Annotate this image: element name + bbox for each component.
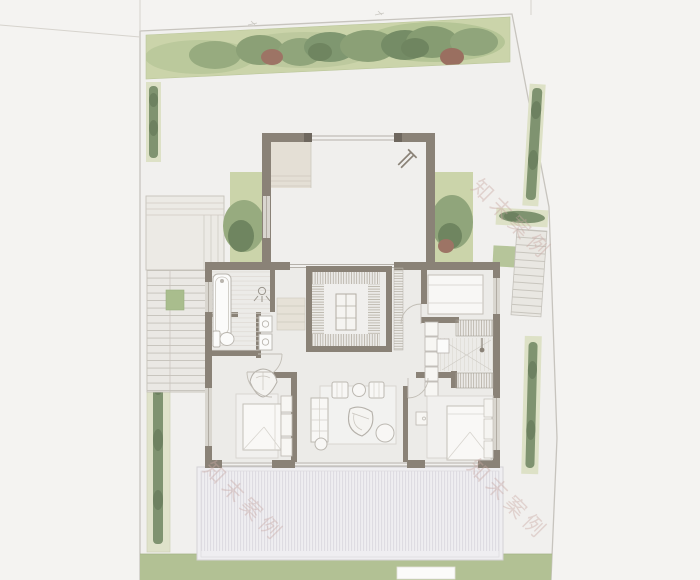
stair-flight-lower xyxy=(456,373,493,388)
hedge-left-top xyxy=(146,82,161,162)
tree-dark xyxy=(308,43,332,61)
red-tree xyxy=(261,49,283,65)
bedroom-right-wall-west xyxy=(403,386,408,462)
building xyxy=(205,133,500,468)
wall-cap xyxy=(304,133,312,142)
atrium-deck-band xyxy=(312,284,324,334)
courtyard-steps xyxy=(271,142,311,188)
courtyard-wall-right xyxy=(426,133,435,266)
shelf-column xyxy=(484,399,493,458)
bath-wall-east-upper xyxy=(270,268,275,312)
red-tree xyxy=(440,48,464,66)
floor-plan-canvas: 知末案例 知末案例 知末案例 xyxy=(0,0,700,580)
wall-cap xyxy=(394,133,402,142)
red-tree xyxy=(438,239,454,253)
stair-flight-upper xyxy=(456,320,493,336)
ottoman xyxy=(376,424,394,442)
armchair xyxy=(369,382,384,398)
bed xyxy=(428,275,483,314)
hall-wall xyxy=(421,270,427,304)
atrium-wall-top xyxy=(306,266,392,272)
house-wall-top-right xyxy=(425,262,500,270)
inner-atrium xyxy=(312,272,380,346)
atrium-wall-left xyxy=(306,266,312,352)
wc-basin xyxy=(437,339,449,353)
grate-strip xyxy=(394,268,403,350)
courtyard-garden-right xyxy=(431,172,473,264)
hedge-texture xyxy=(149,120,158,136)
garden-terrace xyxy=(146,196,224,270)
stool xyxy=(315,438,327,450)
hedge-texture xyxy=(153,490,163,510)
hall-steps xyxy=(277,298,305,330)
sofa xyxy=(311,398,328,442)
bedside-units xyxy=(281,396,292,456)
floor-plan-drawing: 知末案例 知末案例 知末案例 xyxy=(0,0,700,580)
green-landing xyxy=(166,290,184,310)
bedside-table xyxy=(416,412,427,425)
tub-drain xyxy=(220,279,224,283)
atrium-deck-band xyxy=(368,284,380,334)
atrium-wall-bottom xyxy=(306,346,392,352)
bedroom-top-right xyxy=(428,275,483,314)
atrium-deck-band xyxy=(312,272,380,284)
side-table-round xyxy=(353,384,366,397)
toilet xyxy=(213,331,234,347)
south-pier xyxy=(407,460,425,468)
atrium-deck-band xyxy=(312,334,380,346)
hedge-texture xyxy=(153,429,163,451)
living-room xyxy=(311,382,396,450)
tree-dark xyxy=(401,38,429,58)
hedge-texture xyxy=(149,93,158,107)
terrace-platform xyxy=(146,196,224,270)
tree-dark xyxy=(228,220,254,252)
armchair xyxy=(332,382,348,398)
atrium-wall-right xyxy=(386,266,392,352)
tree xyxy=(189,41,241,69)
lawn-step xyxy=(397,567,455,579)
hedge-right-low xyxy=(521,336,542,474)
